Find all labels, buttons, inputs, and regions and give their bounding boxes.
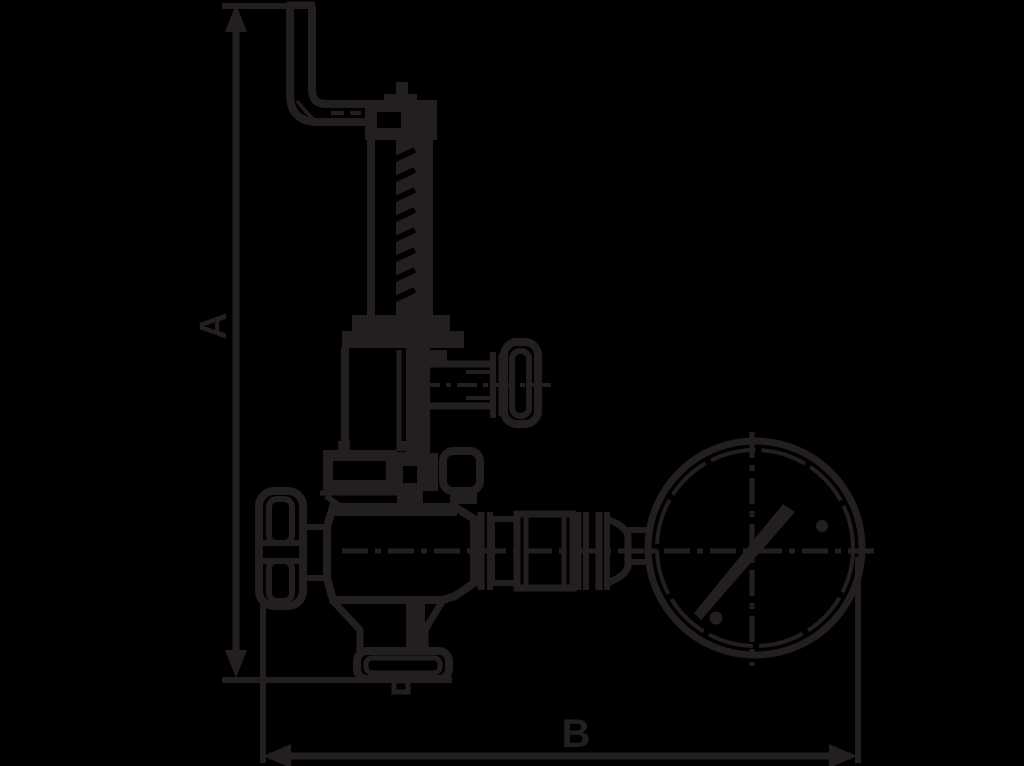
arrow-down-icon (225, 650, 247, 678)
spring-bonnet (371, 138, 433, 318)
dimension-a-label: A (193, 312, 235, 339)
bonnet-flange (342, 315, 464, 348)
mid-flange (320, 441, 480, 512)
valve-technical-drawing: A B (0, 0, 1024, 766)
gauge-needle (694, 504, 795, 620)
arrow-left-icon (263, 744, 291, 766)
gauge-screw-dot (816, 520, 828, 532)
spindle-cap (365, 82, 437, 140)
inlet-handwheel (259, 491, 303, 606)
drawing-canvas: A B (0, 0, 1024, 766)
gauge-screw-dot (710, 612, 723, 625)
dimension-b-label: B (562, 712, 591, 756)
arrow-right-icon (829, 744, 857, 766)
